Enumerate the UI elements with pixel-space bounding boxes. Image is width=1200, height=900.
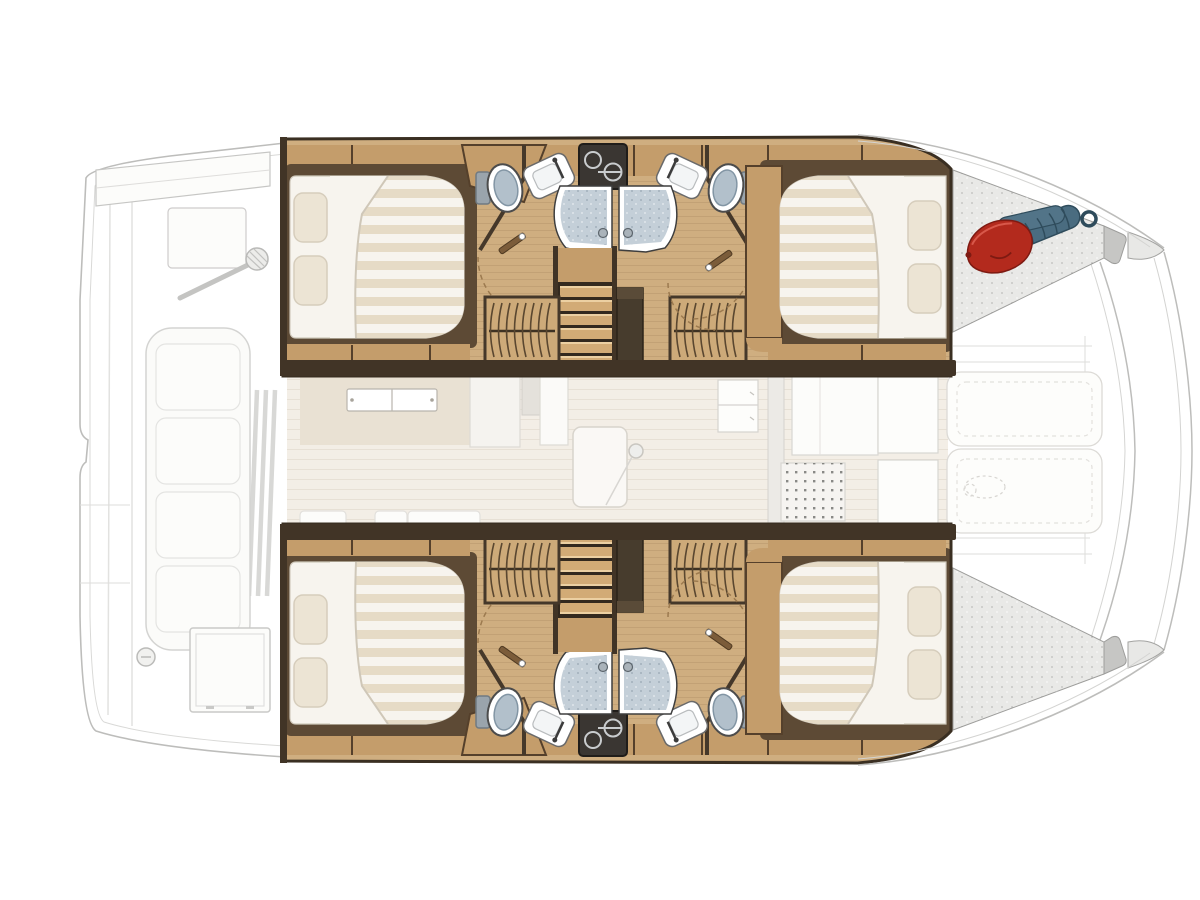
cabinet-block xyxy=(470,375,520,447)
seat-cushion xyxy=(156,492,240,558)
cockpit-bench-cushions xyxy=(947,372,1102,533)
drawer-unit xyxy=(718,380,758,432)
galley-worktop xyxy=(792,372,878,455)
seat-cushion xyxy=(156,344,240,410)
salon-faded xyxy=(287,370,948,527)
door-knob xyxy=(629,444,643,458)
cabinet-block xyxy=(540,377,568,445)
deck-hatch xyxy=(190,628,270,712)
galley-double-sink xyxy=(347,389,437,411)
seat-cushion xyxy=(156,418,240,484)
floorplan-svg xyxy=(0,0,1200,900)
catamaran-floorplan xyxy=(0,0,1200,900)
anchor-locker-hatch xyxy=(168,208,246,268)
seat-cushion xyxy=(156,566,240,632)
forward-seating xyxy=(146,328,250,650)
